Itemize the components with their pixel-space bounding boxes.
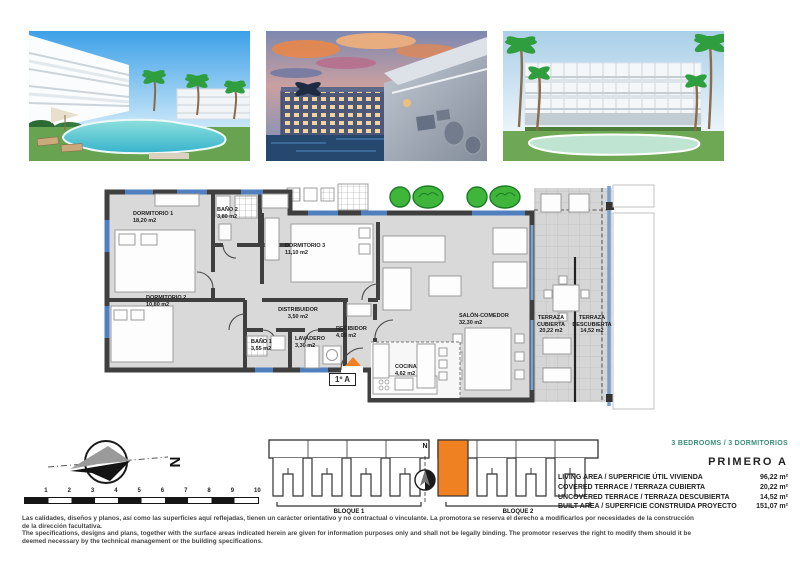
disclaimer-en: The specifications, designs and plans, t… — [22, 530, 698, 545]
render-photo-sunset-terrace — [266, 31, 487, 161]
tree-icon — [390, 187, 410, 207]
scale-tick: 5 — [138, 488, 141, 494]
room-label: BAÑO 23,80 m2 — [217, 207, 257, 220]
summary-bedrooms: 3 BEDROOMS / 3 DORMITORIOS — [558, 440, 788, 447]
garden-band — [287, 184, 520, 210]
summary-row: BUILT AREA / SUPERFICIE CONSTRUIDA PROYE… — [558, 502, 788, 512]
scale-tick: 8 — [207, 488, 210, 494]
area-value: 151,07 m² — [756, 502, 788, 512]
north-label: N — [166, 457, 183, 468]
block-1-footprint — [269, 440, 429, 506]
room-label: COCINA4,62 m2 — [395, 364, 433, 377]
compass-rose: N — [18, 436, 248, 488]
scale-tick: 10 — [254, 488, 261, 494]
scale-bar — [24, 497, 259, 504]
room-label: DORMITORIO 118,20 m2 — [133, 211, 191, 224]
summary-row: LIVING AREA / SUPERFICIE ÚTIL VIVIENDA96… — [558, 473, 788, 483]
summary-row: COVERED TERRACE / TERRAZA CUBIERTA20,22 … — [558, 483, 788, 493]
scale-tick: 1 — [44, 488, 47, 494]
brochure-sheet: DORMITORIO 118,20 m2BAÑO 23,80 m2DORMITO… — [0, 0, 800, 562]
room-label: DISTRIBUIDOR3,50 m2 — [272, 307, 324, 320]
hedge-icon — [490, 186, 520, 208]
room-label: LAVADERO3,30 m2 — [295, 336, 337, 349]
summary-floor-unit: PRIMERO A — [558, 456, 788, 468]
block-unit-highlight — [438, 440, 468, 496]
render-photo-day-pool-image — [29, 31, 250, 161]
area-value: 20,22 m² — [760, 483, 788, 493]
scale-tick: 6 — [161, 488, 164, 494]
area-label: LIVING AREA / SUPERFICIE ÚTIL VIVIENDA — [558, 473, 703, 483]
room-label: BAÑO 13,55 m2 — [251, 339, 289, 352]
summary-row: UNCOVERED TERRACE / TERRAZA DESCUBIERTA1… — [558, 493, 788, 503]
scale-tick: 4 — [114, 488, 117, 494]
scale-tick: 7 — [184, 488, 187, 494]
summary-rows: LIVING AREA / SUPERFICIE ÚTIL VIVIENDA96… — [558, 473, 788, 512]
room-label: SALÓN-COMEDOR32,30 m2 — [459, 313, 521, 326]
render-photo-day-pool — [29, 31, 250, 161]
render-photo-building-facade — [503, 31, 724, 161]
unit-entrance-label: 1º A — [329, 373, 356, 386]
render-photo-sunset-terrace-image — [266, 31, 487, 161]
hedge-icon — [413, 186, 443, 208]
disclaimer-es: Las calidades, diseños y planos, así com… — [22, 515, 698, 530]
area-label: UNCOVERED TERRACE / TERRAZA DESCUBIERTA — [558, 493, 730, 503]
scale-tick: 3 — [91, 488, 94, 494]
room-label: TERRAZA CUBIERTA20,22 m2 — [534, 315, 568, 335]
area-summary: 3 BEDROOMS / 3 DORMITORIOS PRIMERO A LIV… — [558, 440, 788, 512]
area-label: COVERED TERRACE / TERRAZA CUBIERTA — [558, 483, 705, 493]
tree-icon — [467, 187, 487, 207]
terrace-zone — [534, 185, 654, 409]
area-value: 96,22 m² — [760, 473, 788, 483]
room-label: TERRAZA DESCUBIERTA14,52 m2 — [570, 315, 614, 335]
scale-tick: 9 — [231, 488, 234, 494]
area-value: 14,52 m² — [760, 493, 788, 503]
disclaimer: Las calidades, diseños y planos, así com… — [22, 515, 698, 546]
room-label: DORMITORIO 311,10 m2 — [285, 243, 343, 256]
area-label: BUILT AREA / SUPERFICIE CONSTRUIDA PROYE… — [558, 502, 737, 512]
north-label: N — [422, 443, 427, 450]
room-label: RECIBIDOR4,05 m2 — [336, 326, 378, 339]
scale-tick: 2 — [68, 488, 71, 494]
render-photo-building-facade-image — [503, 31, 724, 161]
room-label: DORMITORIO 210,80 m2 — [146, 295, 204, 308]
